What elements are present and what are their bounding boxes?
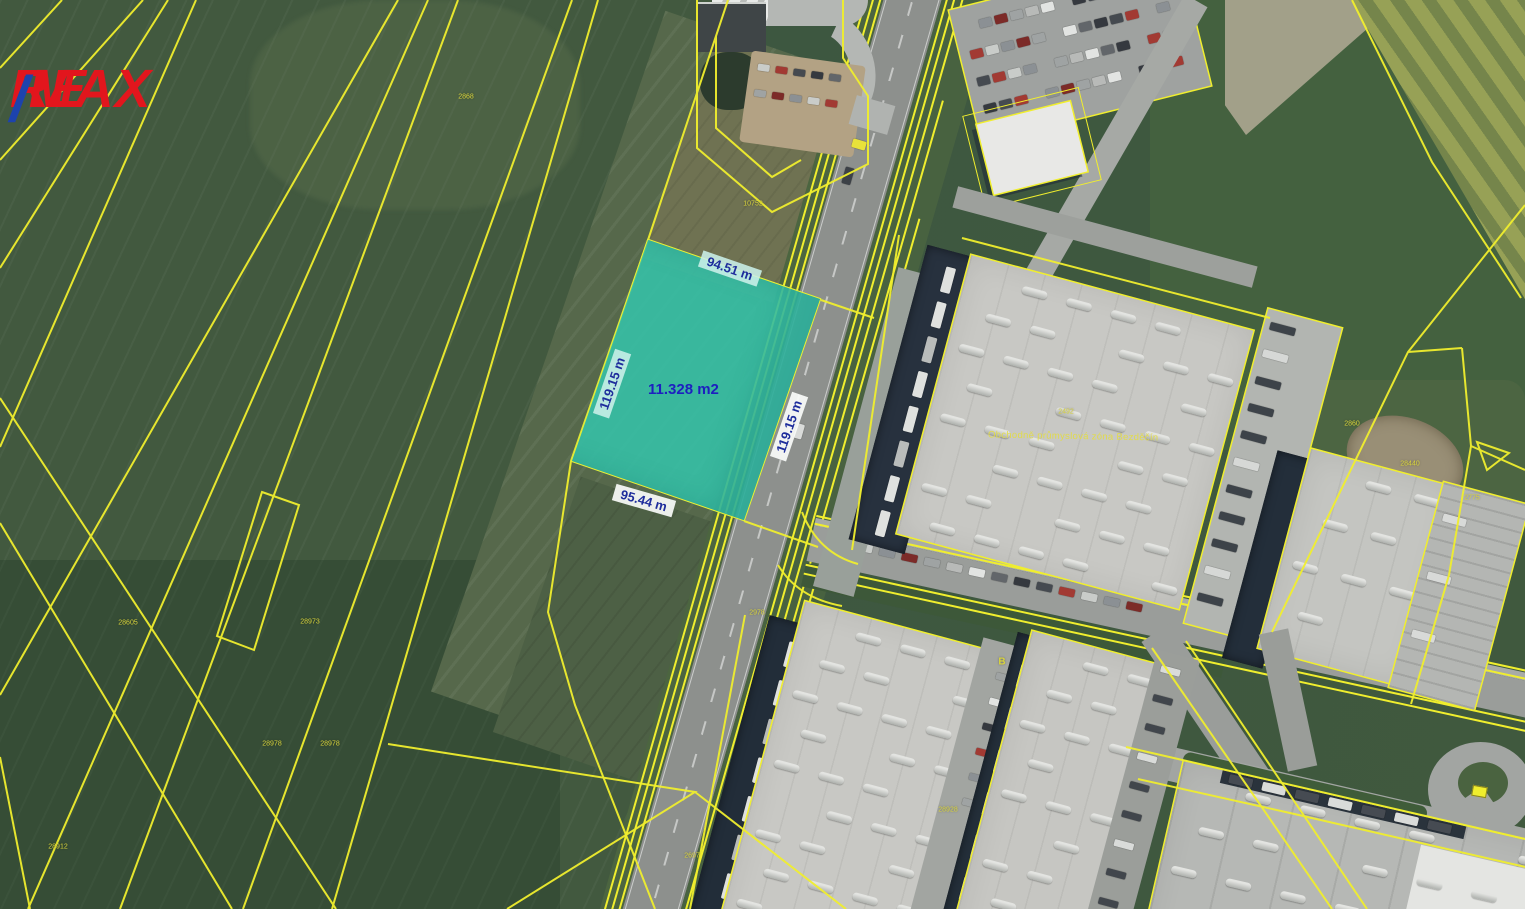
junction-marker: [1471, 785, 1488, 798]
parked-car: [969, 48, 984, 60]
skylight: [736, 898, 763, 909]
skylight: [1054, 518, 1081, 532]
warehouse-white-section: [1382, 845, 1525, 909]
parked-car: [829, 73, 842, 82]
skylight: [870, 822, 897, 836]
skylight: [1045, 801, 1072, 815]
parked-car: [1000, 40, 1015, 52]
parked-truck: [1411, 629, 1436, 643]
parked-trailer: [1211, 538, 1238, 552]
skylight: [889, 753, 916, 767]
skylight: [1361, 864, 1388, 878]
parked-car: [793, 68, 806, 77]
skylight: [1027, 758, 1054, 772]
gas-building-roof: [698, 2, 766, 52]
skylight: [836, 701, 863, 715]
docked-truck: [884, 475, 900, 503]
parked-car: [1125, 9, 1140, 21]
skylight: [939, 413, 966, 427]
docked-truck: [902, 405, 918, 433]
skylight: [899, 644, 926, 658]
parked-car: [1085, 48, 1100, 60]
parked-car: [775, 66, 788, 75]
logo-max: MAX: [29, 58, 152, 120]
parked-truck: [1098, 897, 1119, 909]
skylight: [1143, 542, 1170, 556]
skylight: [1322, 518, 1349, 532]
parked-truck: [1121, 810, 1142, 822]
skylight: [990, 898, 1017, 909]
skylight: [1125, 500, 1152, 514]
parked-car: [1054, 56, 1069, 68]
skylight: [800, 729, 827, 743]
parked-trailer: [1254, 376, 1281, 390]
skylight: [1019, 719, 1046, 733]
parked-car: [1063, 24, 1078, 36]
skylight: [1063, 731, 1090, 745]
field-left-light-patch: [250, 0, 580, 210]
skylight: [773, 759, 800, 773]
parked-truck: [1294, 789, 1319, 803]
parked-trailer: [1197, 592, 1224, 606]
skylight: [1151, 581, 1178, 595]
skylight: [1029, 325, 1056, 339]
skylight: [1036, 476, 1063, 490]
skylight: [1180, 403, 1207, 417]
gas-parking-lot: [739, 50, 866, 157]
parked-car: [1116, 40, 1131, 52]
parked-trailer: [1218, 511, 1245, 525]
skylight: [826, 810, 853, 824]
skylight: [1002, 355, 1029, 369]
parked-car: [1071, 0, 1086, 5]
parked-car: [985, 44, 1000, 56]
parked-car: [811, 71, 824, 80]
skylight: [1413, 493, 1440, 507]
skylight: [1154, 321, 1181, 335]
parked-trailer: [1225, 484, 1252, 498]
skylight: [862, 783, 889, 797]
skylight: [1081, 488, 1108, 502]
skylight: [1082, 661, 1109, 675]
skylight: [973, 534, 1000, 548]
skylight: [1297, 611, 1324, 625]
parked-car: [1100, 44, 1115, 56]
skylight: [763, 868, 790, 882]
parked-car: [1078, 21, 1093, 33]
skylight: [1225, 878, 1252, 892]
skylight: [1279, 890, 1306, 904]
parked-car: [1109, 13, 1124, 25]
docked-truck: [893, 440, 909, 468]
skylight: [929, 522, 956, 536]
parked-car: [1156, 1, 1171, 13]
parked-truck: [1228, 774, 1253, 788]
parked-trailer: [1204, 565, 1231, 579]
parked-truck: [1394, 812, 1419, 826]
parked-car: [825, 99, 838, 108]
parked-car: [1016, 36, 1031, 48]
skylight: [799, 840, 826, 854]
skylight: [1170, 865, 1197, 879]
skylight: [944, 656, 971, 670]
parked-car: [976, 75, 991, 87]
skylight: [755, 829, 782, 843]
skylight: [1198, 826, 1225, 840]
skylight: [1162, 361, 1189, 375]
parked-truck: [1106, 868, 1127, 880]
skylight: [958, 343, 985, 357]
parked-car: [1087, 0, 1102, 1]
parked-car: [807, 97, 820, 106]
parked-trailer: [1269, 322, 1296, 336]
skylight: [1207, 373, 1234, 387]
parked-car: [1040, 1, 1055, 13]
parked-car: [1023, 63, 1038, 75]
skylight: [818, 771, 845, 785]
skylight: [965, 494, 992, 508]
parked-truck: [1129, 781, 1150, 793]
docked-truck: [912, 371, 928, 399]
skylight: [1000, 789, 1027, 803]
parked-truck: [1442, 513, 1467, 527]
skylight: [1292, 560, 1319, 574]
parked-car: [789, 94, 802, 103]
parked-car: [1094, 17, 1109, 29]
skylight: [1047, 367, 1074, 381]
skylight: [1370, 531, 1397, 545]
parked-car: [1007, 67, 1022, 79]
parked-trailer: [1247, 403, 1274, 417]
parked-truck: [1261, 782, 1286, 796]
skylight: [1098, 530, 1125, 544]
skylight: [792, 689, 819, 703]
parked-car: [978, 17, 993, 29]
skylight: [881, 713, 908, 727]
parked-trailer: [1233, 457, 1260, 471]
parked-car: [1032, 32, 1047, 44]
skylight: [1118, 349, 1145, 363]
skylight: [1065, 297, 1092, 311]
parked-truck: [1152, 694, 1173, 706]
parked-truck: [1137, 752, 1158, 764]
skylight: [1252, 839, 1279, 853]
skylight: [925, 725, 952, 739]
logo-slash: /: [10, 63, 29, 135]
skylight: [855, 632, 882, 646]
parked-truck: [1144, 723, 1165, 735]
skylight: [1062, 557, 1089, 571]
parked-car: [1009, 9, 1024, 21]
skylight: [1340, 573, 1367, 587]
skylight: [982, 858, 1009, 872]
docked-truck: [921, 336, 937, 364]
parked-car: [754, 89, 767, 98]
docked-truck: [930, 301, 946, 329]
parked-car: [992, 71, 1007, 83]
parked-truck: [1361, 805, 1386, 819]
skylight: [888, 864, 915, 878]
parked-car: [1025, 5, 1040, 17]
skylight: [1026, 870, 1053, 884]
skylight: [863, 671, 890, 685]
skylight: [1090, 701, 1117, 715]
skylight: [1091, 379, 1118, 393]
docked-truck: [875, 510, 891, 538]
skylight: [1053, 840, 1080, 854]
skylight: [1046, 689, 1073, 703]
skylight: [819, 659, 846, 673]
skylight: [921, 482, 948, 496]
aerial-map: 94.51 m 119.15 m 119.15 m 95.44 m 11.328…: [0, 0, 1525, 909]
skylight: [985, 313, 1012, 327]
skylight: [1110, 309, 1137, 323]
parked-car: [771, 92, 784, 101]
parcel-area-label: 11.328 m2: [648, 381, 719, 398]
parked-truck: [1427, 820, 1452, 834]
parked-car: [1069, 52, 1084, 64]
skylight: [1365, 480, 1392, 494]
skylight: [1055, 406, 1082, 420]
skylight: [1021, 286, 1048, 300]
docked-truck: [940, 266, 956, 294]
skylight: [1334, 903, 1361, 909]
parked-truck: [1160, 665, 1181, 677]
skylight: [1388, 586, 1415, 600]
skylight: [807, 880, 834, 894]
skylight: [852, 892, 879, 906]
parked-car: [1107, 71, 1122, 83]
skylight: [1188, 442, 1215, 456]
parked-truck: [1113, 839, 1134, 851]
parked-car: [757, 63, 770, 72]
remax-logo: RE/MAX: [10, 58, 29, 132]
parked-trailer: [1262, 349, 1289, 363]
parked-trailer: [1240, 430, 1267, 444]
skylight: [1117, 460, 1144, 474]
parked-car: [1092, 75, 1107, 87]
skylight: [1018, 546, 1045, 560]
skylight: [992, 464, 1019, 478]
parked-truck: [1327, 797, 1352, 811]
skylight: [1162, 472, 1189, 486]
parked-truck: [1426, 571, 1451, 585]
parked-car: [994, 13, 1009, 25]
skylight: [966, 383, 993, 397]
